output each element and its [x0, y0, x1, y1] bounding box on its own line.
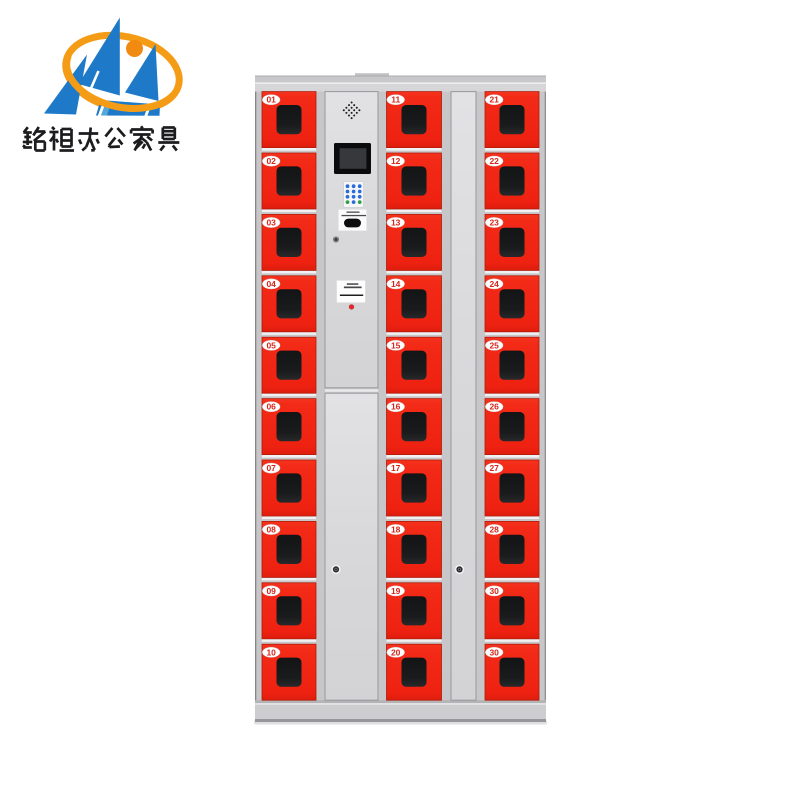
svg-text:16: 16	[391, 402, 401, 412]
svg-text:02: 02	[266, 156, 276, 166]
svg-text:22: 22	[489, 156, 499, 166]
svg-text:14: 14	[391, 279, 401, 289]
svg-text:28: 28	[489, 525, 499, 535]
svg-text:25: 25	[489, 340, 499, 350]
svg-text:19: 19	[391, 586, 401, 596]
svg-text:07: 07	[266, 463, 276, 473]
svg-text:10: 10	[266, 647, 276, 657]
svg-text:21: 21	[489, 95, 499, 105]
svg-text:26: 26	[489, 402, 499, 412]
svg-text:13: 13	[391, 218, 401, 228]
svg-text:27: 27	[489, 463, 499, 473]
svg-text:05: 05	[266, 340, 276, 350]
svg-text:04: 04	[266, 279, 276, 289]
svg-text:24: 24	[489, 279, 499, 289]
svg-text:11: 11	[391, 95, 400, 105]
svg-text:12: 12	[391, 156, 401, 166]
svg-text:08: 08	[266, 525, 276, 535]
svg-text:30: 30	[489, 586, 499, 596]
svg-text:15: 15	[391, 340, 401, 350]
svg-text:18: 18	[391, 525, 401, 535]
svg-text:03: 03	[266, 218, 276, 228]
svg-text:01: 01	[266, 95, 276, 105]
svg-text:23: 23	[489, 218, 499, 228]
svg-text:09: 09	[266, 586, 276, 596]
svg-text:20: 20	[391, 647, 401, 657]
svg-text:06: 06	[266, 402, 276, 412]
svg-text:17: 17	[391, 463, 401, 473]
svg-text:30: 30	[489, 647, 499, 657]
